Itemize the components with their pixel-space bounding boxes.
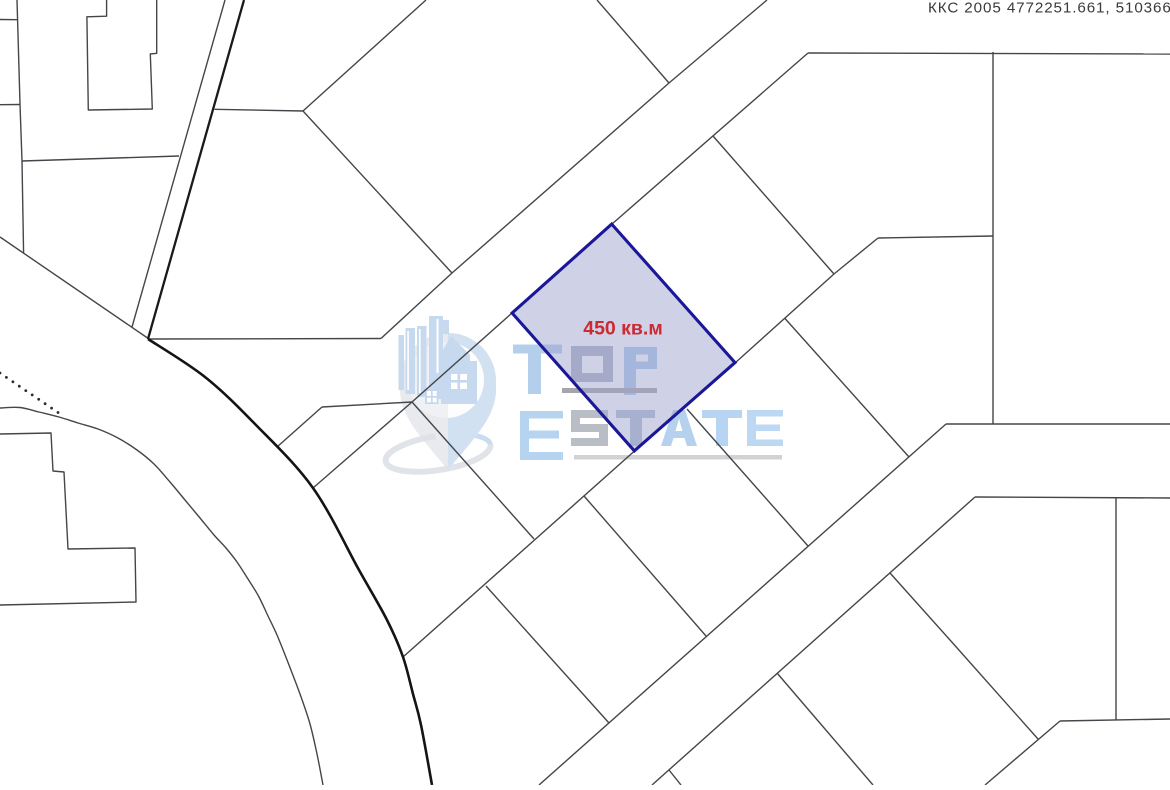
svg-text:ККС 2005 4772251.661, 510366.: ККС 2005 4772251.661, 510366. bbox=[928, 0, 1170, 16]
svg-text:450 кв.м: 450 кв.м bbox=[583, 318, 663, 340]
